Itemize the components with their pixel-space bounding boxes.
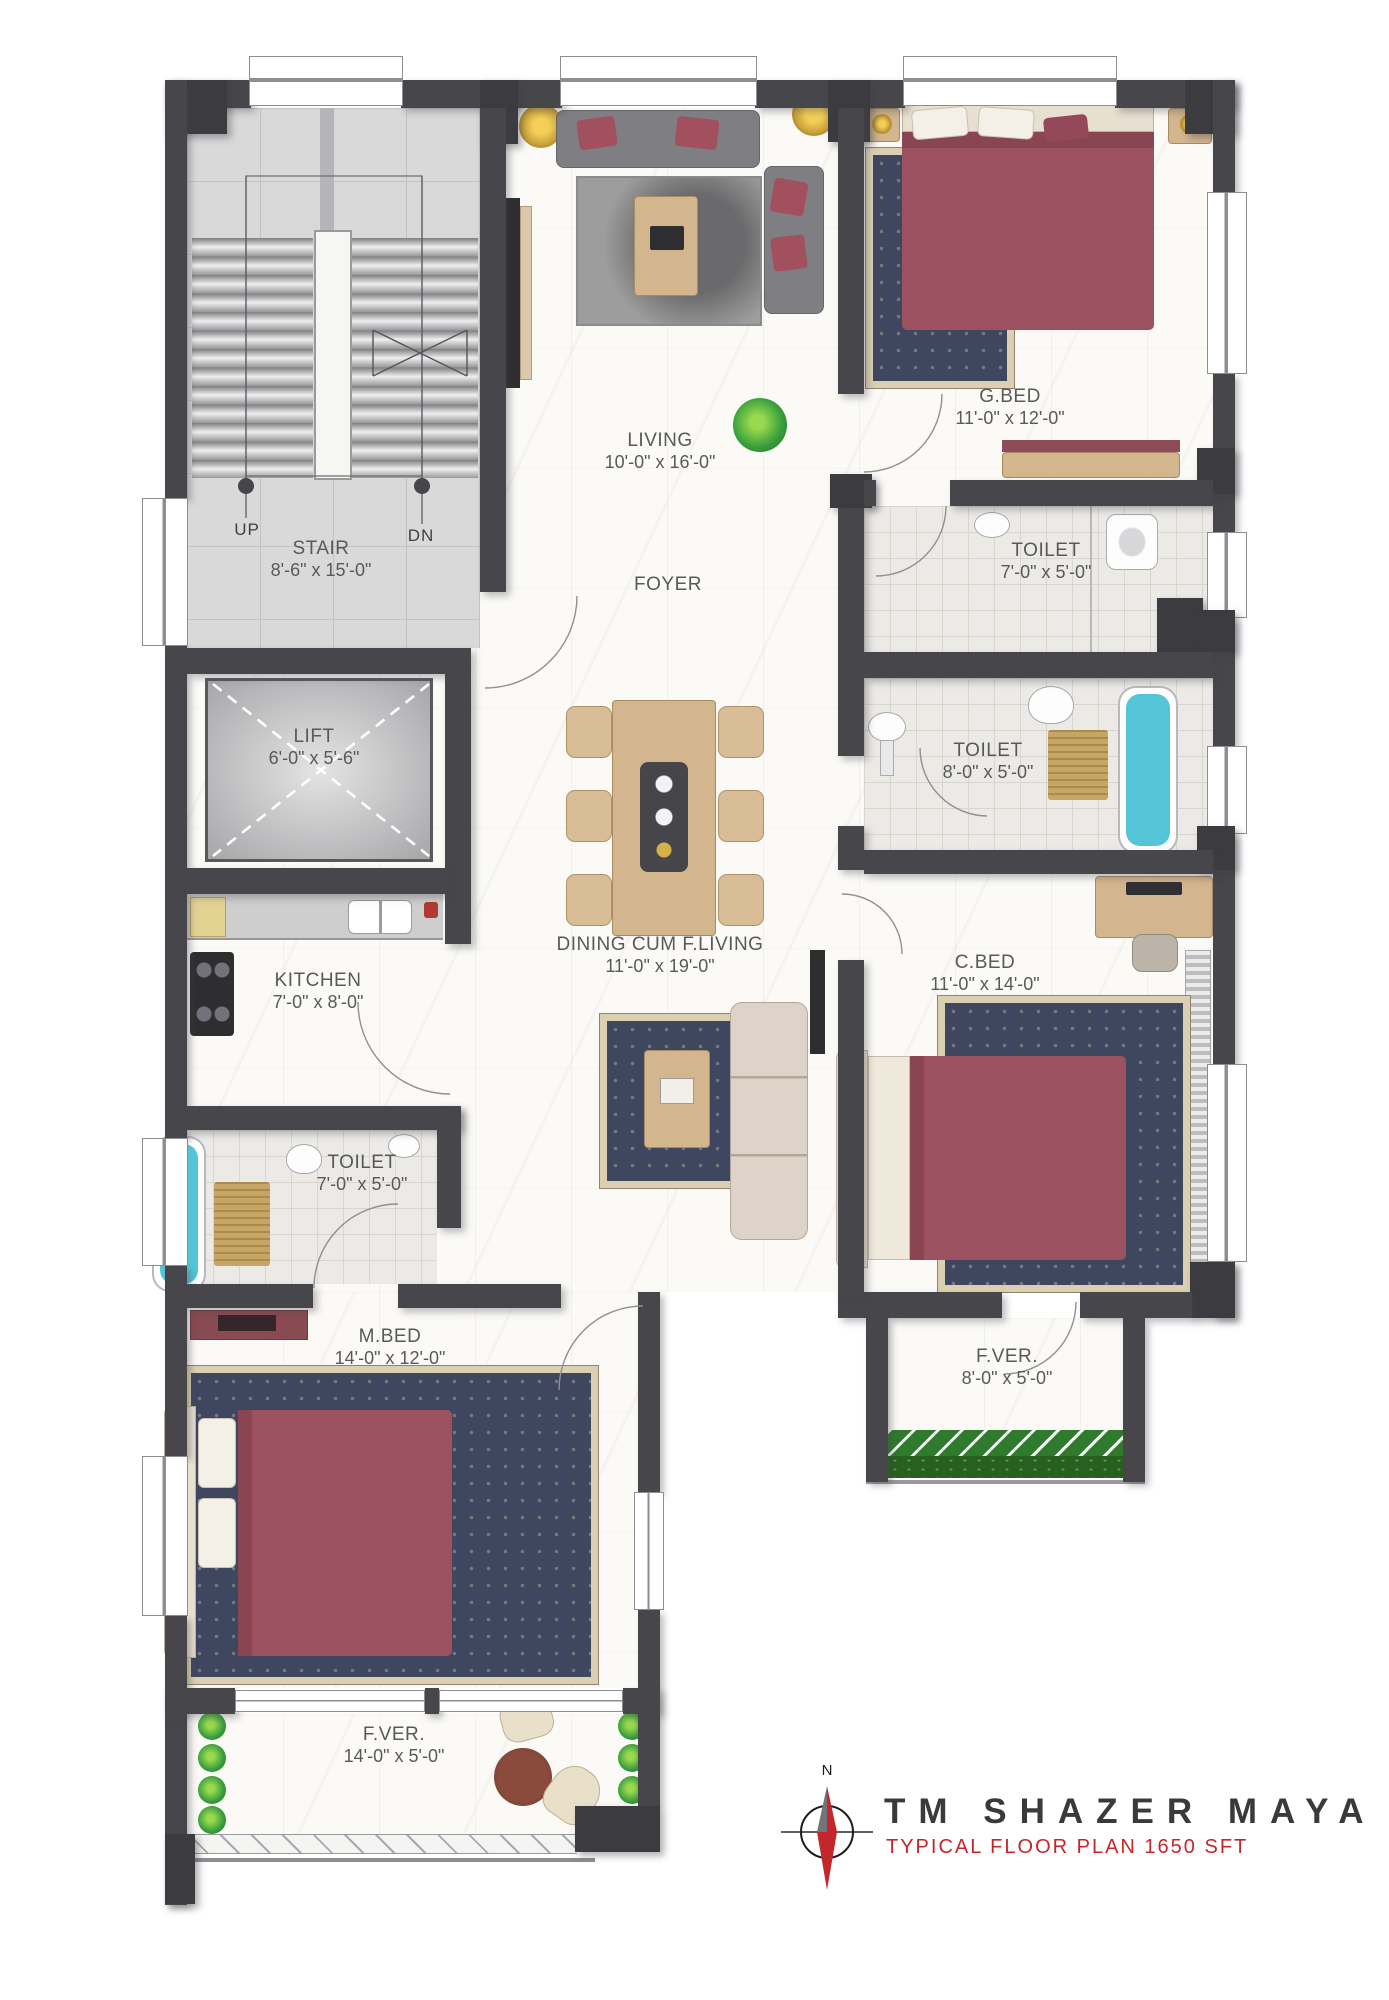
mbed-label: M.BED 14'-0" x 12'-0" xyxy=(335,1326,446,1369)
kitchen-sink xyxy=(348,900,412,934)
dining-chair xyxy=(566,874,612,926)
wall-segment xyxy=(445,674,471,944)
dining-chair xyxy=(566,706,612,758)
wall-segment xyxy=(866,1318,888,1482)
veranda-outer-line xyxy=(165,1858,595,1862)
wall-segment xyxy=(165,646,187,1138)
fver-bottom-label: F.VER. 14'-0" x 5'-0" xyxy=(344,1724,445,1767)
wall-segment xyxy=(437,1106,461,1228)
desk-monitor xyxy=(1126,882,1182,895)
wall-segment xyxy=(838,508,864,756)
plan-subtitle: TYPICAL FLOOR PLAN 1650 SFT xyxy=(886,1836,1248,1859)
tv-console xyxy=(520,206,532,380)
mbed-pillow xyxy=(198,1498,236,1568)
plant-icon xyxy=(198,1806,226,1834)
sofa-cushion xyxy=(769,177,808,216)
mbed-blanket xyxy=(238,1410,452,1656)
plant-icon xyxy=(733,398,787,452)
toilet-cbed-label: TOILET 8'-0" x 5'-0" xyxy=(943,740,1034,783)
gbed-pillow xyxy=(911,106,969,141)
stair-stringer xyxy=(314,230,352,480)
stair-flight-right xyxy=(352,238,478,478)
wall-segment xyxy=(480,108,506,592)
wall-segment xyxy=(838,1292,1002,1318)
wall-segment xyxy=(461,1284,561,1308)
floor-plan: UP DN STAIR 8'-6" x 15'-0" LIVING 10'-0"… xyxy=(0,0,1389,2000)
window xyxy=(1207,192,1247,374)
wall-segment xyxy=(1123,1318,1145,1482)
wall-segment xyxy=(187,1284,313,1308)
wall-segment xyxy=(864,652,1213,678)
wall-segment xyxy=(398,1284,461,1308)
wall-segment xyxy=(950,480,1213,506)
project-title: TM SHAZER MAYA xyxy=(884,1792,1377,1832)
gbed-pillow xyxy=(977,106,1035,140)
plant-icon xyxy=(198,1712,226,1740)
gbed-label: G.BED 11'-0" x 12'-0" xyxy=(955,386,1064,429)
compass-north-label: N xyxy=(815,1762,839,1779)
stair-dn-label: DN xyxy=(408,526,435,546)
wall-segment xyxy=(638,1714,660,1806)
dining-chair xyxy=(718,706,764,758)
planter-grass xyxy=(888,1456,1123,1478)
pedestal-basin-icon xyxy=(868,712,906,742)
compass-ring xyxy=(801,1806,853,1858)
wall-segment xyxy=(864,480,876,506)
desk-chair xyxy=(1132,934,1178,972)
cbed-blanket xyxy=(910,1056,1126,1260)
squat-toilet-icon xyxy=(1106,514,1158,570)
living-label: LIVING 10'-0" x 16'-0" xyxy=(605,430,716,473)
kitchen-stove xyxy=(190,952,234,1036)
sofa-cushion xyxy=(675,116,720,150)
gbed-accent-pillow xyxy=(1043,114,1089,142)
wall-segment xyxy=(864,850,1213,874)
wall-segment xyxy=(165,80,187,498)
dresser-tv xyxy=(218,1315,276,1331)
sofa-cushion xyxy=(770,234,808,272)
kitchen-shelf xyxy=(190,897,226,937)
kitchen-appliance xyxy=(424,902,438,918)
wall-pillar xyxy=(165,1834,195,1904)
toilet-mbed-label: TOILET 7'-0" x 5'-0" xyxy=(317,1152,408,1195)
window xyxy=(1207,532,1247,618)
table-lamp-icon xyxy=(872,114,892,134)
gbed-bench xyxy=(1002,452,1180,478)
cbed-label: C.BED 11'-0" x 14'-0" xyxy=(930,952,1039,995)
window xyxy=(249,56,403,106)
fver-right-label: F.VER. 8'-0" x 5'-0" xyxy=(962,1346,1053,1389)
toilet-icon xyxy=(1028,686,1074,724)
compass-needle-gray xyxy=(817,1786,827,1832)
plant-icon xyxy=(198,1744,226,1772)
veranda-edge-hatch xyxy=(175,1834,577,1854)
plant-icon xyxy=(198,1776,226,1804)
wall-segment xyxy=(838,960,864,1292)
lift-cab xyxy=(205,678,433,862)
bath-mat xyxy=(214,1182,270,1266)
fliving-sofa xyxy=(730,1002,808,1240)
window xyxy=(1207,1064,1247,1262)
stair-up-label: UP xyxy=(234,520,260,540)
wall-segment xyxy=(1080,1292,1192,1318)
window xyxy=(142,1138,188,1266)
basin-pedestal xyxy=(880,740,894,776)
dining-chair xyxy=(718,874,764,926)
wall-segment xyxy=(165,1688,235,1714)
dining-label: DINING CUM F.LIVING 11'-0" x 19'-0" xyxy=(557,934,764,977)
basin-icon xyxy=(974,512,1010,538)
wall-pillar xyxy=(1197,610,1235,652)
wall-pillar xyxy=(1190,1262,1235,1318)
window xyxy=(235,1690,425,1712)
cbed-pillow-zone xyxy=(868,1056,910,1260)
stair-flight-left xyxy=(192,238,313,478)
compass-needle-red xyxy=(827,1786,837,1832)
wall-segment xyxy=(187,1106,461,1130)
wall-segment xyxy=(425,1688,439,1714)
gbed-blanket xyxy=(902,132,1154,330)
tv-panel xyxy=(506,198,520,388)
window xyxy=(142,1456,188,1616)
wall-segment xyxy=(187,868,445,894)
window xyxy=(439,1690,623,1712)
tv-panel xyxy=(810,950,825,1054)
mbed-pillow xyxy=(198,1418,236,1488)
coffee-table-items xyxy=(650,226,684,250)
foyer-label: FOYER xyxy=(634,574,702,596)
window xyxy=(903,56,1117,106)
planter-hatch xyxy=(888,1430,1123,1456)
wall-segment xyxy=(638,1610,660,1714)
window xyxy=(1207,746,1247,834)
dining-runner xyxy=(640,762,688,872)
stair-rail-bar xyxy=(320,108,334,238)
window xyxy=(560,56,757,106)
wall-segment xyxy=(638,1292,660,1492)
bathtub-inner xyxy=(1126,694,1170,846)
stair-label: STAIR 8'-6" x 15'-0" xyxy=(271,538,372,581)
bath-mat xyxy=(1048,730,1108,800)
veranda-rail xyxy=(866,1480,1145,1484)
wall-segment xyxy=(187,648,471,674)
lift-label: LIFT 6'-0" x 5'-6" xyxy=(269,726,360,769)
kitchen-label: KITCHEN 7'-0" x 8'-0" xyxy=(273,970,364,1013)
wall-segment xyxy=(165,1266,187,1456)
wall-pillar xyxy=(575,1806,660,1852)
compass-needle-south xyxy=(817,1832,837,1890)
coffee-table-items xyxy=(660,1078,694,1104)
wall-segment xyxy=(838,826,864,870)
wall-segment xyxy=(838,108,864,394)
window xyxy=(142,498,188,646)
toilet-gbed-label: TOILET 7'-0" x 5'-0" xyxy=(1001,540,1092,583)
dining-chair xyxy=(718,790,764,842)
dining-chair xyxy=(566,790,612,842)
sofa-cushion xyxy=(576,116,618,151)
wall-segment xyxy=(1213,80,1235,192)
window xyxy=(634,1492,664,1610)
gbed-bench-top xyxy=(1002,440,1180,452)
